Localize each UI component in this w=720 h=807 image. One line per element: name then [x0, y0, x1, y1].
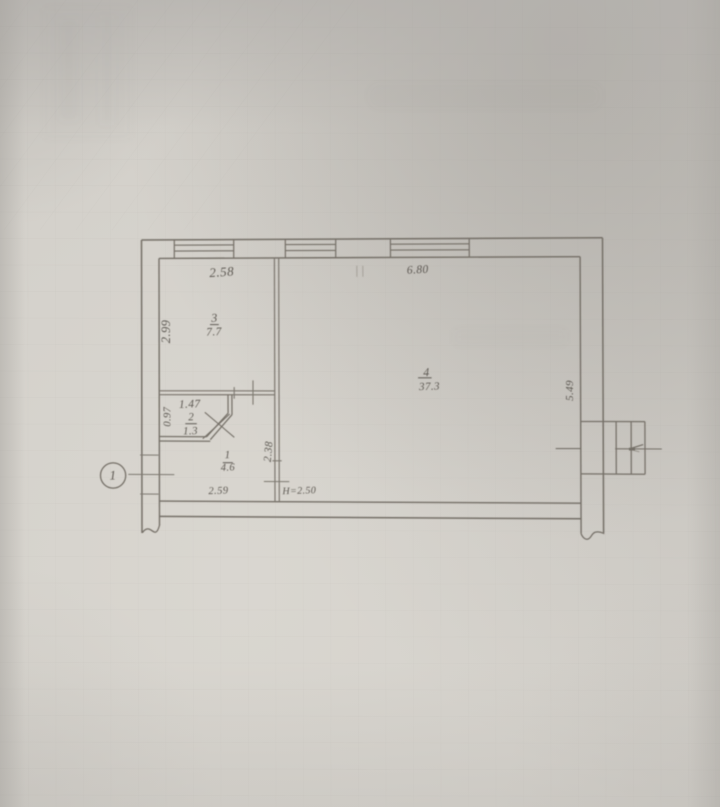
svg-text:2.99: 2.99: [159, 319, 173, 343]
svg-text:5.49: 5.49: [564, 380, 576, 401]
svg-text:4: 4: [423, 365, 430, 379]
svg-text:37.3: 37.3: [418, 380, 440, 393]
svg-text:7.7: 7.7: [206, 326, 223, 339]
svg-text:H=2.50: H=2.50: [281, 485, 316, 497]
svg-text:0.97: 0.97: [163, 406, 174, 426]
svg-text:2.38: 2.38: [262, 441, 276, 463]
svg-text:1.47: 1.47: [179, 398, 202, 411]
svg-text:6.80: 6.80: [407, 264, 429, 277]
svg-text:3: 3: [210, 311, 218, 325]
svg-text:1.3: 1.3: [183, 425, 198, 437]
svg-text:2.59: 2.59: [208, 485, 229, 497]
svg-text:2.58: 2.58: [209, 263, 235, 280]
svg-text:1: 1: [109, 467, 116, 482]
svg-text:4.6: 4.6: [221, 462, 236, 473]
svg-text:2: 2: [188, 411, 194, 423]
svg-text:1: 1: [224, 449, 230, 461]
